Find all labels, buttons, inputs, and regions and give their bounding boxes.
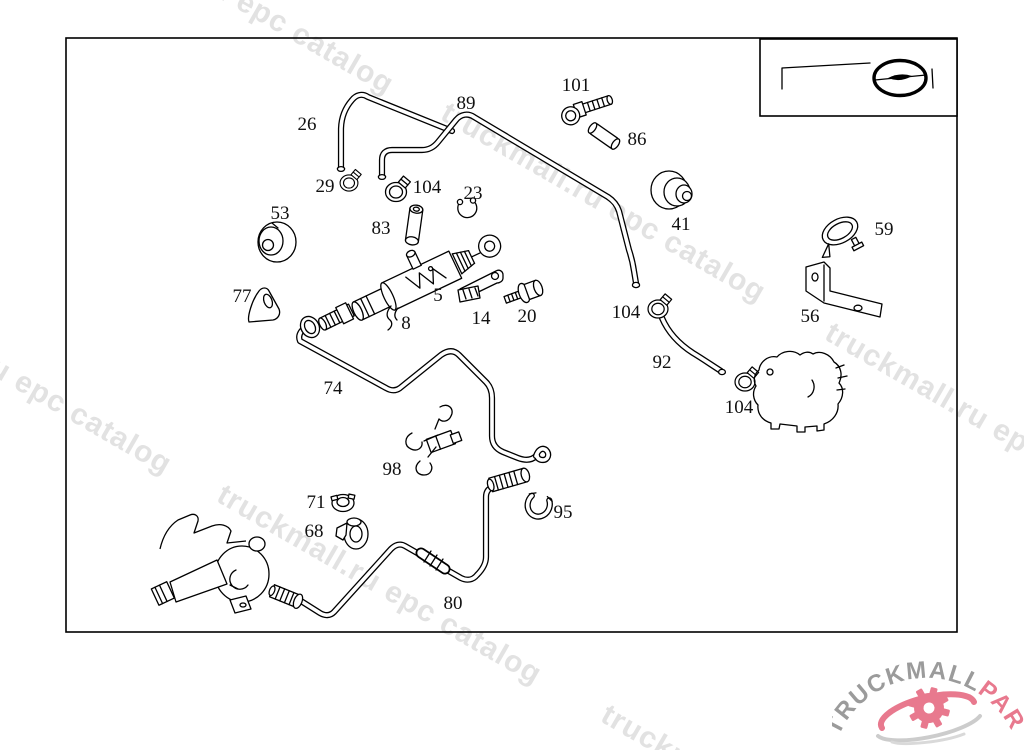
- part-59-strap: [810, 211, 868, 265]
- part-label-80: 80: [444, 593, 463, 614]
- part-label-14: 14: [472, 308, 492, 329]
- part-95-clip: [523, 491, 553, 520]
- part-label-29: 29: [316, 176, 335, 197]
- pipe-junction-fitting: [486, 467, 531, 492]
- part-92-hose: [662, 318, 725, 375]
- transmission-housing-outline: [754, 351, 847, 432]
- truckmall-parts-logo: TRUCKMALLPARTS: [832, 646, 1024, 750]
- part-label-101: 101: [562, 75, 591, 96]
- part-101-bolt: [559, 93, 616, 128]
- part-label-20: 20: [518, 306, 537, 327]
- part-26-hose: [337, 95, 452, 172]
- part-20-bolt: [502, 277, 545, 309]
- part-29-clamp: [340, 169, 361, 191]
- part-label-5: 5: [433, 285, 443, 306]
- part-41-boot: [651, 171, 692, 209]
- part-68-holder: [336, 518, 368, 549]
- part-label-68: 68: [305, 521, 324, 542]
- slave-cylinder-assembly: [151, 514, 269, 613]
- part-label-92: 92: [653, 352, 672, 373]
- part-label-77: 77: [233, 286, 252, 307]
- part-label-26: 26: [298, 114, 317, 135]
- part-label-71: 71: [307, 492, 326, 513]
- part-label-86: 86: [628, 129, 647, 150]
- part-83-hose: [405, 204, 423, 245]
- part-71-grommet: [331, 494, 355, 511]
- part-98-holder: [406, 405, 462, 475]
- part-label-104c: 104: [725, 397, 754, 418]
- part-label-95: 95: [554, 502, 573, 523]
- part-label-41: 41: [672, 214, 691, 235]
- part-104-clamp-top: [386, 176, 411, 201]
- part-label-104a: 104: [413, 177, 442, 198]
- part-53-grommet: [258, 222, 296, 262]
- part-label-8: 8: [401, 313, 411, 334]
- part-14-bracket: [458, 270, 503, 302]
- catalog-page: truckmall.ru epc catalogtruckmall.ru epc…: [0, 0, 1024, 750]
- part-label-59: 59: [875, 219, 894, 240]
- part-77-boot: [249, 288, 280, 322]
- part-label-56: 56: [801, 306, 820, 327]
- part-labels: 2689101862910423538341597751420856104921…: [233, 75, 894, 614]
- drive-position-indicator: [760, 39, 957, 116]
- part-label-89: 89: [457, 93, 476, 114]
- part-label-98: 98: [383, 459, 402, 480]
- part-label-23: 23: [464, 183, 483, 204]
- part-label-53: 53: [271, 203, 290, 224]
- pipe-74-union-fitting: [316, 302, 355, 334]
- pipe-80-threaded-end: [267, 583, 305, 610]
- parts-diagram: 2689101862910423538341597751420856104921…: [0, 0, 1024, 750]
- part-104-clamp-mid: [648, 294, 672, 318]
- part-86-pin: [587, 121, 622, 150]
- part-label-83: 83: [372, 218, 391, 239]
- part-label-74: 74: [324, 378, 344, 399]
- part-label-104b: 104: [612, 302, 641, 323]
